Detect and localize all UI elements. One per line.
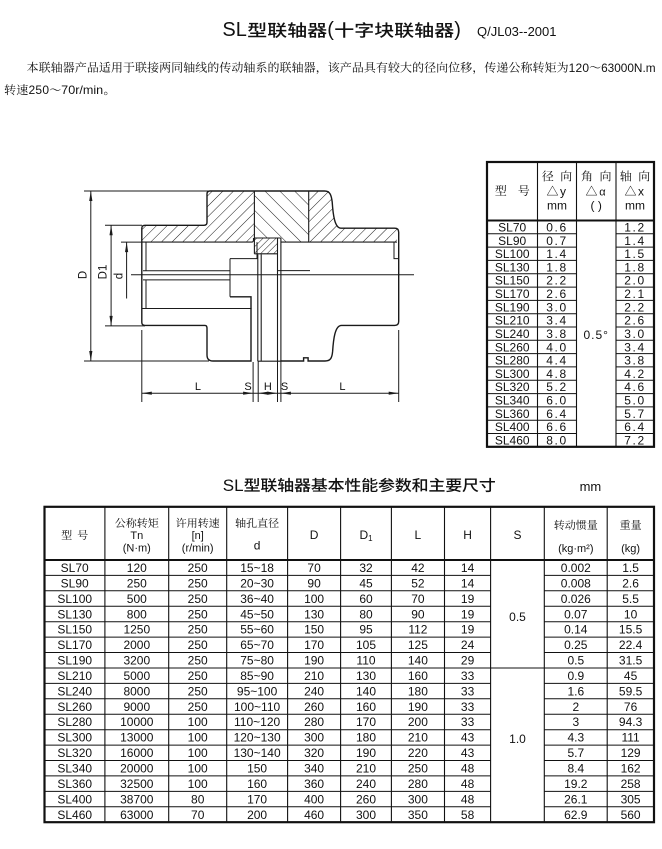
svg-text:L: L bbox=[339, 381, 345, 393]
svg-text:0.07: 0.07 bbox=[564, 607, 588, 621]
svg-text:8.4: 8.4 bbox=[567, 762, 584, 776]
svg-text:94.3: 94.3 bbox=[619, 715, 643, 729]
svg-text:70: 70 bbox=[411, 592, 425, 606]
svg-text:65~70: 65~70 bbox=[240, 638, 274, 652]
svg-text:2.6: 2.6 bbox=[624, 314, 645, 328]
svg-text:SL170: SL170 bbox=[495, 287, 530, 301]
svg-text:SL170: SL170 bbox=[57, 638, 92, 652]
svg-text:(N·m): (N·m) bbox=[123, 543, 151, 555]
svg-text:2.0: 2.0 bbox=[624, 274, 645, 288]
svg-text:2.2: 2.2 bbox=[546, 274, 567, 288]
svg-text:SL90: SL90 bbox=[498, 234, 526, 248]
svg-text:210: 210 bbox=[356, 762, 376, 776]
svg-text:0.5: 0.5 bbox=[567, 654, 584, 668]
svg-text:0.9: 0.9 bbox=[567, 669, 584, 683]
svg-text:y: y bbox=[560, 185, 566, 199]
svg-text:1250: 1250 bbox=[123, 623, 150, 637]
svg-text:300: 300 bbox=[356, 808, 376, 822]
svg-text:33: 33 bbox=[461, 669, 475, 683]
svg-text:58: 58 bbox=[461, 808, 475, 822]
svg-text:100: 100 bbox=[304, 592, 324, 606]
svg-text:20~30: 20~30 bbox=[240, 576, 274, 590]
svg-text:340: 340 bbox=[304, 762, 324, 776]
svg-text:1.8: 1.8 bbox=[546, 260, 567, 274]
svg-text:250: 250 bbox=[188, 623, 208, 637]
svg-text:59.5: 59.5 bbox=[619, 684, 643, 698]
svg-text:2.6: 2.6 bbox=[546, 287, 567, 301]
svg-text:3: 3 bbox=[572, 715, 579, 729]
svg-text:2.6: 2.6 bbox=[622, 576, 639, 590]
svg-text:22.4: 22.4 bbox=[619, 638, 643, 652]
svg-text:260: 260 bbox=[356, 792, 376, 806]
svg-text:63000: 63000 bbox=[120, 808, 154, 822]
svg-text:400: 400 bbox=[304, 792, 324, 806]
svg-text:38700: 38700 bbox=[120, 792, 154, 806]
svg-text:3.0: 3.0 bbox=[624, 327, 645, 341]
svg-text:60: 60 bbox=[359, 592, 373, 606]
svg-text:SL190: SL190 bbox=[495, 300, 530, 314]
svg-text:250: 250 bbox=[188, 592, 208, 606]
svg-text:100: 100 bbox=[188, 715, 208, 729]
svg-text:8.0: 8.0 bbox=[546, 433, 567, 447]
svg-text:4.6: 4.6 bbox=[624, 380, 645, 394]
svg-text:d: d bbox=[114, 273, 126, 279]
svg-text:2: 2 bbox=[572, 700, 579, 714]
svg-text:170: 170 bbox=[247, 792, 267, 806]
svg-text:6.0: 6.0 bbox=[546, 394, 567, 408]
svg-text:280: 280 bbox=[408, 777, 428, 791]
svg-text:33: 33 bbox=[461, 684, 475, 698]
svg-text:36~40: 36~40 bbox=[240, 592, 274, 606]
svg-text:SL360: SL360 bbox=[495, 407, 530, 421]
svg-text:24: 24 bbox=[461, 638, 475, 652]
svg-text:SL130: SL130 bbox=[57, 607, 92, 621]
svg-text:SL70: SL70 bbox=[498, 221, 526, 235]
svg-text:180: 180 bbox=[356, 731, 376, 745]
svg-text:210: 210 bbox=[304, 669, 324, 683]
svg-text:200: 200 bbox=[408, 715, 428, 729]
svg-text:D1: D1 bbox=[359, 528, 373, 543]
svg-text:SL100: SL100 bbox=[57, 592, 92, 606]
svg-text:6.4: 6.4 bbox=[624, 420, 645, 434]
svg-text:SL280: SL280 bbox=[495, 354, 530, 368]
svg-text:d: d bbox=[254, 539, 261, 553]
svg-text:mm: mm bbox=[580, 479, 602, 494]
svg-text:SL130: SL130 bbox=[495, 260, 530, 274]
svg-text:SL210: SL210 bbox=[57, 669, 92, 683]
svg-text:6.6: 6.6 bbox=[546, 420, 567, 434]
svg-text:95: 95 bbox=[359, 623, 373, 637]
svg-text:1.4: 1.4 bbox=[546, 247, 567, 261]
svg-text:460: 460 bbox=[304, 808, 324, 822]
svg-text:130~140: 130~140 bbox=[234, 746, 281, 760]
svg-text:0.6: 0.6 bbox=[546, 221, 567, 235]
svg-text:4.2: 4.2 bbox=[624, 367, 645, 381]
svg-text:SL400: SL400 bbox=[57, 792, 92, 806]
svg-text:SL100: SL100 bbox=[495, 247, 530, 261]
svg-text:15~18: 15~18 bbox=[240, 561, 274, 575]
svg-text:32500: 32500 bbox=[120, 777, 154, 791]
svg-text:19: 19 bbox=[461, 623, 475, 637]
svg-text:190: 190 bbox=[408, 700, 428, 714]
svg-text:31.5: 31.5 bbox=[619, 654, 643, 668]
svg-text:0.008: 0.008 bbox=[561, 576, 591, 590]
svg-text:300: 300 bbox=[304, 731, 324, 745]
svg-text:19: 19 bbox=[461, 607, 475, 621]
svg-text:140: 140 bbox=[408, 654, 428, 668]
svg-text:260: 260 bbox=[304, 700, 324, 714]
svg-text:4.3: 4.3 bbox=[567, 731, 584, 745]
svg-text:300: 300 bbox=[408, 792, 428, 806]
svg-text:5.2: 5.2 bbox=[546, 380, 567, 394]
svg-text:1.5: 1.5 bbox=[624, 247, 645, 261]
svg-text:100~110: 100~110 bbox=[234, 700, 280, 714]
svg-text:55~60: 55~60 bbox=[240, 623, 274, 637]
svg-text:H: H bbox=[463, 528, 472, 542]
svg-text:19: 19 bbox=[461, 592, 475, 606]
svg-text:85~90: 85~90 bbox=[240, 669, 274, 683]
svg-text:5.5: 5.5 bbox=[622, 592, 639, 606]
svg-text:2.1: 2.1 bbox=[624, 287, 645, 301]
svg-text:170: 170 bbox=[356, 715, 376, 729]
svg-text:SL460: SL460 bbox=[495, 433, 530, 447]
svg-text:160: 160 bbox=[247, 777, 267, 791]
svg-text:5.0: 5.0 bbox=[624, 394, 645, 408]
svg-text:SL150: SL150 bbox=[495, 274, 530, 288]
svg-text:6.4: 6.4 bbox=[546, 407, 567, 421]
svg-text:SL210: SL210 bbox=[495, 314, 530, 328]
svg-text:120: 120 bbox=[569, 61, 590, 75]
svg-text:180: 180 bbox=[408, 684, 428, 698]
svg-text:120~130: 120~130 bbox=[234, 731, 281, 745]
svg-text:80: 80 bbox=[191, 792, 205, 806]
svg-text:SL: SL bbox=[222, 19, 246, 41]
svg-text:7.2: 7.2 bbox=[624, 433, 645, 447]
svg-text:112: 112 bbox=[408, 623, 427, 637]
svg-text:α: α bbox=[599, 187, 606, 199]
svg-text:26.1: 26.1 bbox=[564, 792, 588, 806]
svg-text:250: 250 bbox=[188, 684, 208, 698]
svg-text:Q/JL03--2001: Q/JL03--2001 bbox=[477, 24, 557, 39]
svg-text:SL340: SL340 bbox=[495, 394, 530, 408]
svg-text:48: 48 bbox=[461, 792, 475, 806]
svg-text:0.25: 0.25 bbox=[564, 638, 588, 652]
svg-text:(kg): (kg) bbox=[621, 543, 640, 555]
svg-text:SL360: SL360 bbox=[57, 777, 92, 791]
svg-text:320: 320 bbox=[304, 746, 324, 760]
svg-text:190: 190 bbox=[304, 654, 324, 668]
svg-text:(: ( bbox=[327, 19, 334, 41]
svg-text:4.8: 4.8 bbox=[546, 367, 567, 381]
svg-text:0.14: 0.14 bbox=[564, 623, 588, 637]
svg-text:SL240: SL240 bbox=[57, 684, 92, 698]
svg-text:90: 90 bbox=[307, 576, 321, 590]
svg-text:220: 220 bbox=[408, 746, 428, 760]
svg-text:63000N.m: 63000N.m bbox=[601, 61, 656, 75]
svg-text:S: S bbox=[513, 528, 521, 542]
svg-text:42: 42 bbox=[411, 561, 425, 575]
svg-text:100: 100 bbox=[188, 762, 208, 776]
svg-text:52: 52 bbox=[411, 576, 425, 590]
svg-text:S: S bbox=[244, 381, 251, 393]
svg-text:4.0: 4.0 bbox=[546, 340, 567, 354]
svg-text:48: 48 bbox=[461, 777, 475, 791]
svg-text:): ) bbox=[454, 19, 461, 41]
svg-text:130: 130 bbox=[304, 607, 324, 621]
svg-text:250: 250 bbox=[188, 561, 208, 575]
svg-text:100: 100 bbox=[188, 746, 208, 760]
svg-text:0.5: 0.5 bbox=[509, 610, 526, 624]
svg-text:360: 360 bbox=[304, 777, 324, 791]
svg-text:111: 111 bbox=[621, 731, 640, 745]
svg-text:mm: mm bbox=[547, 199, 567, 213]
svg-text:48: 48 bbox=[461, 762, 475, 776]
svg-text:( ): ( ) bbox=[591, 199, 602, 213]
svg-text:SL90: SL90 bbox=[61, 576, 89, 590]
svg-text:1.5: 1.5 bbox=[622, 561, 639, 575]
svg-text:14: 14 bbox=[461, 576, 475, 590]
svg-text:100: 100 bbox=[188, 731, 208, 745]
svg-text:Tn: Tn bbox=[130, 530, 143, 542]
svg-text:x: x bbox=[638, 185, 644, 199]
svg-text:250: 250 bbox=[188, 669, 208, 683]
svg-text:258: 258 bbox=[621, 777, 641, 791]
svg-text:250: 250 bbox=[188, 607, 208, 621]
svg-text:80: 80 bbox=[359, 607, 373, 621]
svg-text:120: 120 bbox=[127, 561, 147, 575]
svg-text:150: 150 bbox=[247, 762, 267, 776]
svg-text:76: 76 bbox=[624, 700, 638, 714]
svg-text:10000: 10000 bbox=[120, 715, 154, 729]
svg-text:3.8: 3.8 bbox=[624, 354, 645, 368]
svg-text:S: S bbox=[281, 381, 288, 393]
svg-text:110~120: 110~120 bbox=[234, 715, 280, 729]
svg-text:210: 210 bbox=[408, 731, 428, 745]
svg-text:4.4: 4.4 bbox=[546, 354, 567, 368]
svg-text:D: D bbox=[78, 271, 90, 279]
svg-text:SL340: SL340 bbox=[57, 762, 92, 776]
svg-text:3.8: 3.8 bbox=[546, 327, 567, 341]
svg-text:0.7: 0.7 bbox=[546, 234, 567, 248]
svg-text:45: 45 bbox=[624, 669, 638, 683]
svg-text:(r/min): (r/min) bbox=[182, 543, 214, 555]
svg-text:10: 10 bbox=[624, 607, 638, 621]
svg-text:305: 305 bbox=[621, 792, 641, 806]
svg-text:160: 160 bbox=[356, 700, 376, 714]
svg-text:33: 33 bbox=[461, 700, 475, 714]
svg-text:70r/min: 70r/min bbox=[61, 83, 103, 97]
svg-text:SL400: SL400 bbox=[495, 420, 530, 434]
svg-text:0.026: 0.026 bbox=[561, 592, 591, 606]
svg-text:15.5: 15.5 bbox=[619, 623, 643, 637]
svg-text:8000: 8000 bbox=[123, 684, 150, 698]
svg-text:250: 250 bbox=[188, 700, 208, 714]
svg-text:SL300: SL300 bbox=[57, 731, 92, 745]
svg-text:H: H bbox=[264, 381, 272, 393]
svg-text:560: 560 bbox=[621, 808, 641, 822]
svg-text:75~80: 75~80 bbox=[240, 654, 274, 668]
svg-text:L: L bbox=[195, 381, 201, 393]
svg-text:2000: 2000 bbox=[123, 638, 150, 652]
svg-text:SL320: SL320 bbox=[495, 380, 530, 394]
svg-text:5000: 5000 bbox=[123, 669, 150, 683]
svg-text:280: 280 bbox=[304, 715, 324, 729]
svg-text:500: 500 bbox=[127, 592, 147, 606]
svg-text:SL: SL bbox=[223, 476, 244, 495]
svg-text:250: 250 bbox=[188, 638, 208, 652]
svg-text:105: 105 bbox=[356, 638, 376, 652]
svg-text:5.7: 5.7 bbox=[624, 407, 645, 421]
svg-text:250: 250 bbox=[188, 576, 208, 590]
svg-text:150: 150 bbox=[304, 623, 324, 637]
svg-text:140: 140 bbox=[356, 684, 376, 698]
svg-text:(kg·m²): (kg·m²) bbox=[558, 543, 593, 555]
svg-text:129: 129 bbox=[621, 746, 641, 760]
svg-text:130: 130 bbox=[356, 669, 376, 683]
svg-text:13000: 13000 bbox=[120, 731, 154, 745]
svg-text:29: 29 bbox=[461, 654, 475, 668]
svg-text:800: 800 bbox=[127, 607, 147, 621]
svg-text:33: 33 bbox=[461, 715, 475, 729]
svg-text:70: 70 bbox=[191, 808, 205, 822]
svg-text:250: 250 bbox=[408, 762, 428, 776]
svg-text:110: 110 bbox=[356, 654, 375, 668]
svg-text:SL190: SL190 bbox=[57, 654, 92, 668]
svg-text:32: 32 bbox=[359, 561, 373, 575]
svg-text:90: 90 bbox=[411, 607, 425, 621]
svg-text:SL460: SL460 bbox=[57, 808, 92, 822]
svg-text:45~50: 45~50 bbox=[240, 607, 274, 621]
svg-text:9000: 9000 bbox=[123, 700, 150, 714]
svg-text:14: 14 bbox=[461, 561, 475, 575]
svg-text:350: 350 bbox=[408, 808, 428, 822]
svg-text:70: 70 bbox=[307, 561, 321, 575]
svg-text:1.6: 1.6 bbox=[567, 684, 584, 698]
svg-text:1.4: 1.4 bbox=[624, 234, 645, 248]
svg-text:240: 240 bbox=[304, 684, 324, 698]
svg-text:95~100: 95~100 bbox=[237, 684, 278, 698]
svg-text:SL320: SL320 bbox=[57, 746, 92, 760]
svg-text:20000: 20000 bbox=[120, 762, 154, 776]
svg-text:5.7: 5.7 bbox=[567, 746, 584, 760]
svg-text:[n]: [n] bbox=[192, 530, 204, 542]
svg-text:SL300: SL300 bbox=[495, 367, 530, 381]
svg-text:250: 250 bbox=[127, 576, 147, 590]
svg-text:16000: 16000 bbox=[120, 746, 154, 760]
svg-text:3.4: 3.4 bbox=[546, 314, 567, 328]
svg-text:100: 100 bbox=[188, 777, 208, 791]
svg-text:62.9: 62.9 bbox=[564, 808, 588, 822]
svg-text:43: 43 bbox=[461, 746, 475, 760]
svg-text:160: 160 bbox=[408, 669, 428, 683]
svg-text:240: 240 bbox=[356, 777, 376, 791]
svg-text:43: 43 bbox=[461, 731, 475, 745]
svg-text:0.5°: 0.5° bbox=[583, 328, 608, 342]
svg-text:45: 45 bbox=[359, 576, 373, 590]
svg-text:2.2: 2.2 bbox=[624, 300, 645, 314]
svg-text:1.2: 1.2 bbox=[624, 221, 645, 235]
svg-text:1.0: 1.0 bbox=[509, 732, 526, 746]
svg-text:19.2: 19.2 bbox=[564, 777, 588, 791]
svg-text:3200: 3200 bbox=[123, 654, 150, 668]
svg-text:1.8: 1.8 bbox=[624, 260, 645, 274]
svg-text:L: L bbox=[415, 528, 422, 542]
svg-text:125: 125 bbox=[408, 638, 428, 652]
svg-text:250: 250 bbox=[29, 83, 50, 97]
svg-text:200: 200 bbox=[247, 808, 267, 822]
svg-text:0.002: 0.002 bbox=[561, 561, 591, 575]
svg-text:170: 170 bbox=[304, 638, 324, 652]
svg-text:SL70: SL70 bbox=[61, 561, 89, 575]
svg-text:SL150: SL150 bbox=[57, 623, 92, 637]
svg-text:D: D bbox=[310, 528, 319, 542]
svg-text:3.4: 3.4 bbox=[624, 340, 645, 354]
svg-text:SL260: SL260 bbox=[57, 700, 92, 714]
svg-text:162: 162 bbox=[621, 762, 641, 776]
svg-text:3.0: 3.0 bbox=[546, 300, 567, 314]
svg-text:mm: mm bbox=[625, 199, 645, 213]
svg-text:D1: D1 bbox=[98, 265, 110, 280]
svg-text:SL260: SL260 bbox=[495, 340, 530, 354]
svg-text:250: 250 bbox=[188, 654, 208, 668]
svg-text:SL280: SL280 bbox=[57, 715, 92, 729]
svg-text:SL240: SL240 bbox=[495, 327, 530, 341]
svg-text:190: 190 bbox=[356, 746, 376, 760]
